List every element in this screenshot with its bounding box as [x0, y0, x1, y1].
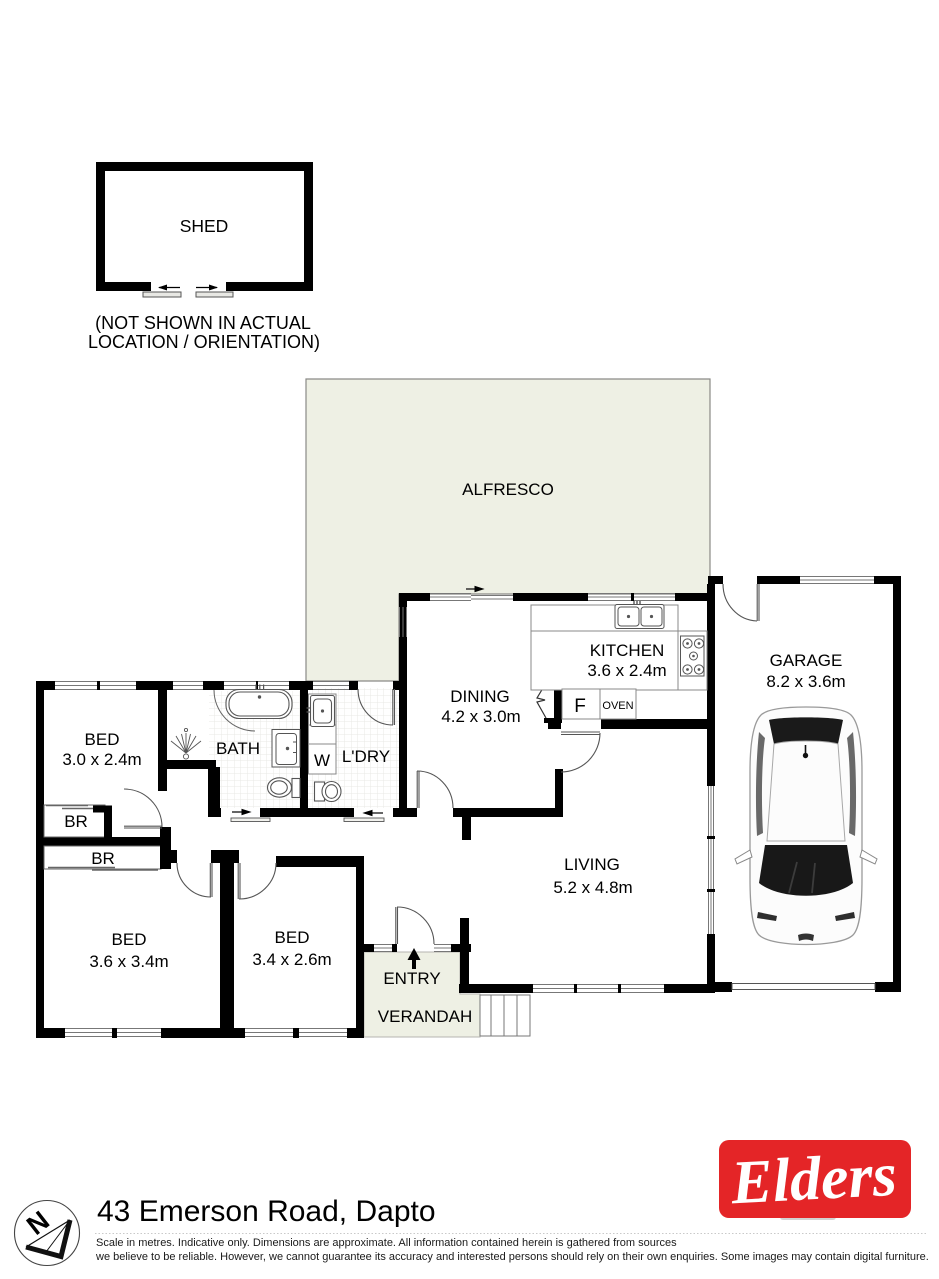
svg-text:ALFRESCO: ALFRESCO: [462, 480, 554, 499]
svg-text:BED: BED: [275, 928, 310, 947]
svg-text:BATH: BATH: [216, 739, 260, 758]
svg-text:L'DRY: L'DRY: [342, 747, 390, 766]
svg-text:4.2 x 3.0m: 4.2 x 3.0m: [441, 707, 520, 726]
svg-text:SHED: SHED: [180, 216, 229, 236]
svg-text:VERANDAH: VERANDAH: [378, 1007, 472, 1026]
svg-text:Elders: Elders: [729, 1141, 899, 1218]
svg-text:3.0 x 2.4m: 3.0 x 2.4m: [62, 750, 141, 769]
svg-text:Scale in metres. Indicative on: Scale in metres. Indicative only. Dimens…: [96, 1237, 677, 1249]
svg-text:we believe to be reliable. How: we believe to be reliable. However, we c…: [95, 1251, 929, 1263]
svg-text:BED: BED: [112, 930, 147, 949]
svg-text:W: W: [314, 751, 330, 770]
svg-text:LOCATION / ORIENTATION): LOCATION / ORIENTATION): [88, 332, 320, 352]
svg-text:43 Emerson Road, Dapto: 43 Emerson Road, Dapto: [97, 1195, 436, 1228]
svg-text:DINING: DINING: [450, 687, 510, 706]
svg-text:BED: BED: [85, 730, 120, 749]
svg-text:3.4 x 2.6m: 3.4 x 2.6m: [252, 950, 331, 969]
svg-text:(NOT SHOWN IN ACTUAL: (NOT SHOWN IN ACTUAL: [95, 313, 311, 333]
svg-text:8.2 x 3.6m: 8.2 x 3.6m: [766, 672, 845, 691]
svg-text:LIVING: LIVING: [564, 855, 620, 874]
svg-text:BR: BR: [91, 849, 115, 868]
svg-text:GARAGE: GARAGE: [770, 651, 843, 670]
svg-text:ENTRY: ENTRY: [383, 969, 440, 988]
svg-text:3.6 x 3.4m: 3.6 x 3.4m: [89, 952, 168, 971]
svg-text:5.2 x 4.8m: 5.2 x 4.8m: [553, 878, 632, 897]
svg-text:OVEN: OVEN: [602, 700, 633, 712]
svg-text:BR: BR: [64, 812, 88, 831]
svg-text:KITCHEN: KITCHEN: [590, 641, 665, 660]
svg-text:F: F: [574, 696, 586, 717]
svg-text:3.6 x 2.4m: 3.6 x 2.4m: [587, 661, 666, 680]
